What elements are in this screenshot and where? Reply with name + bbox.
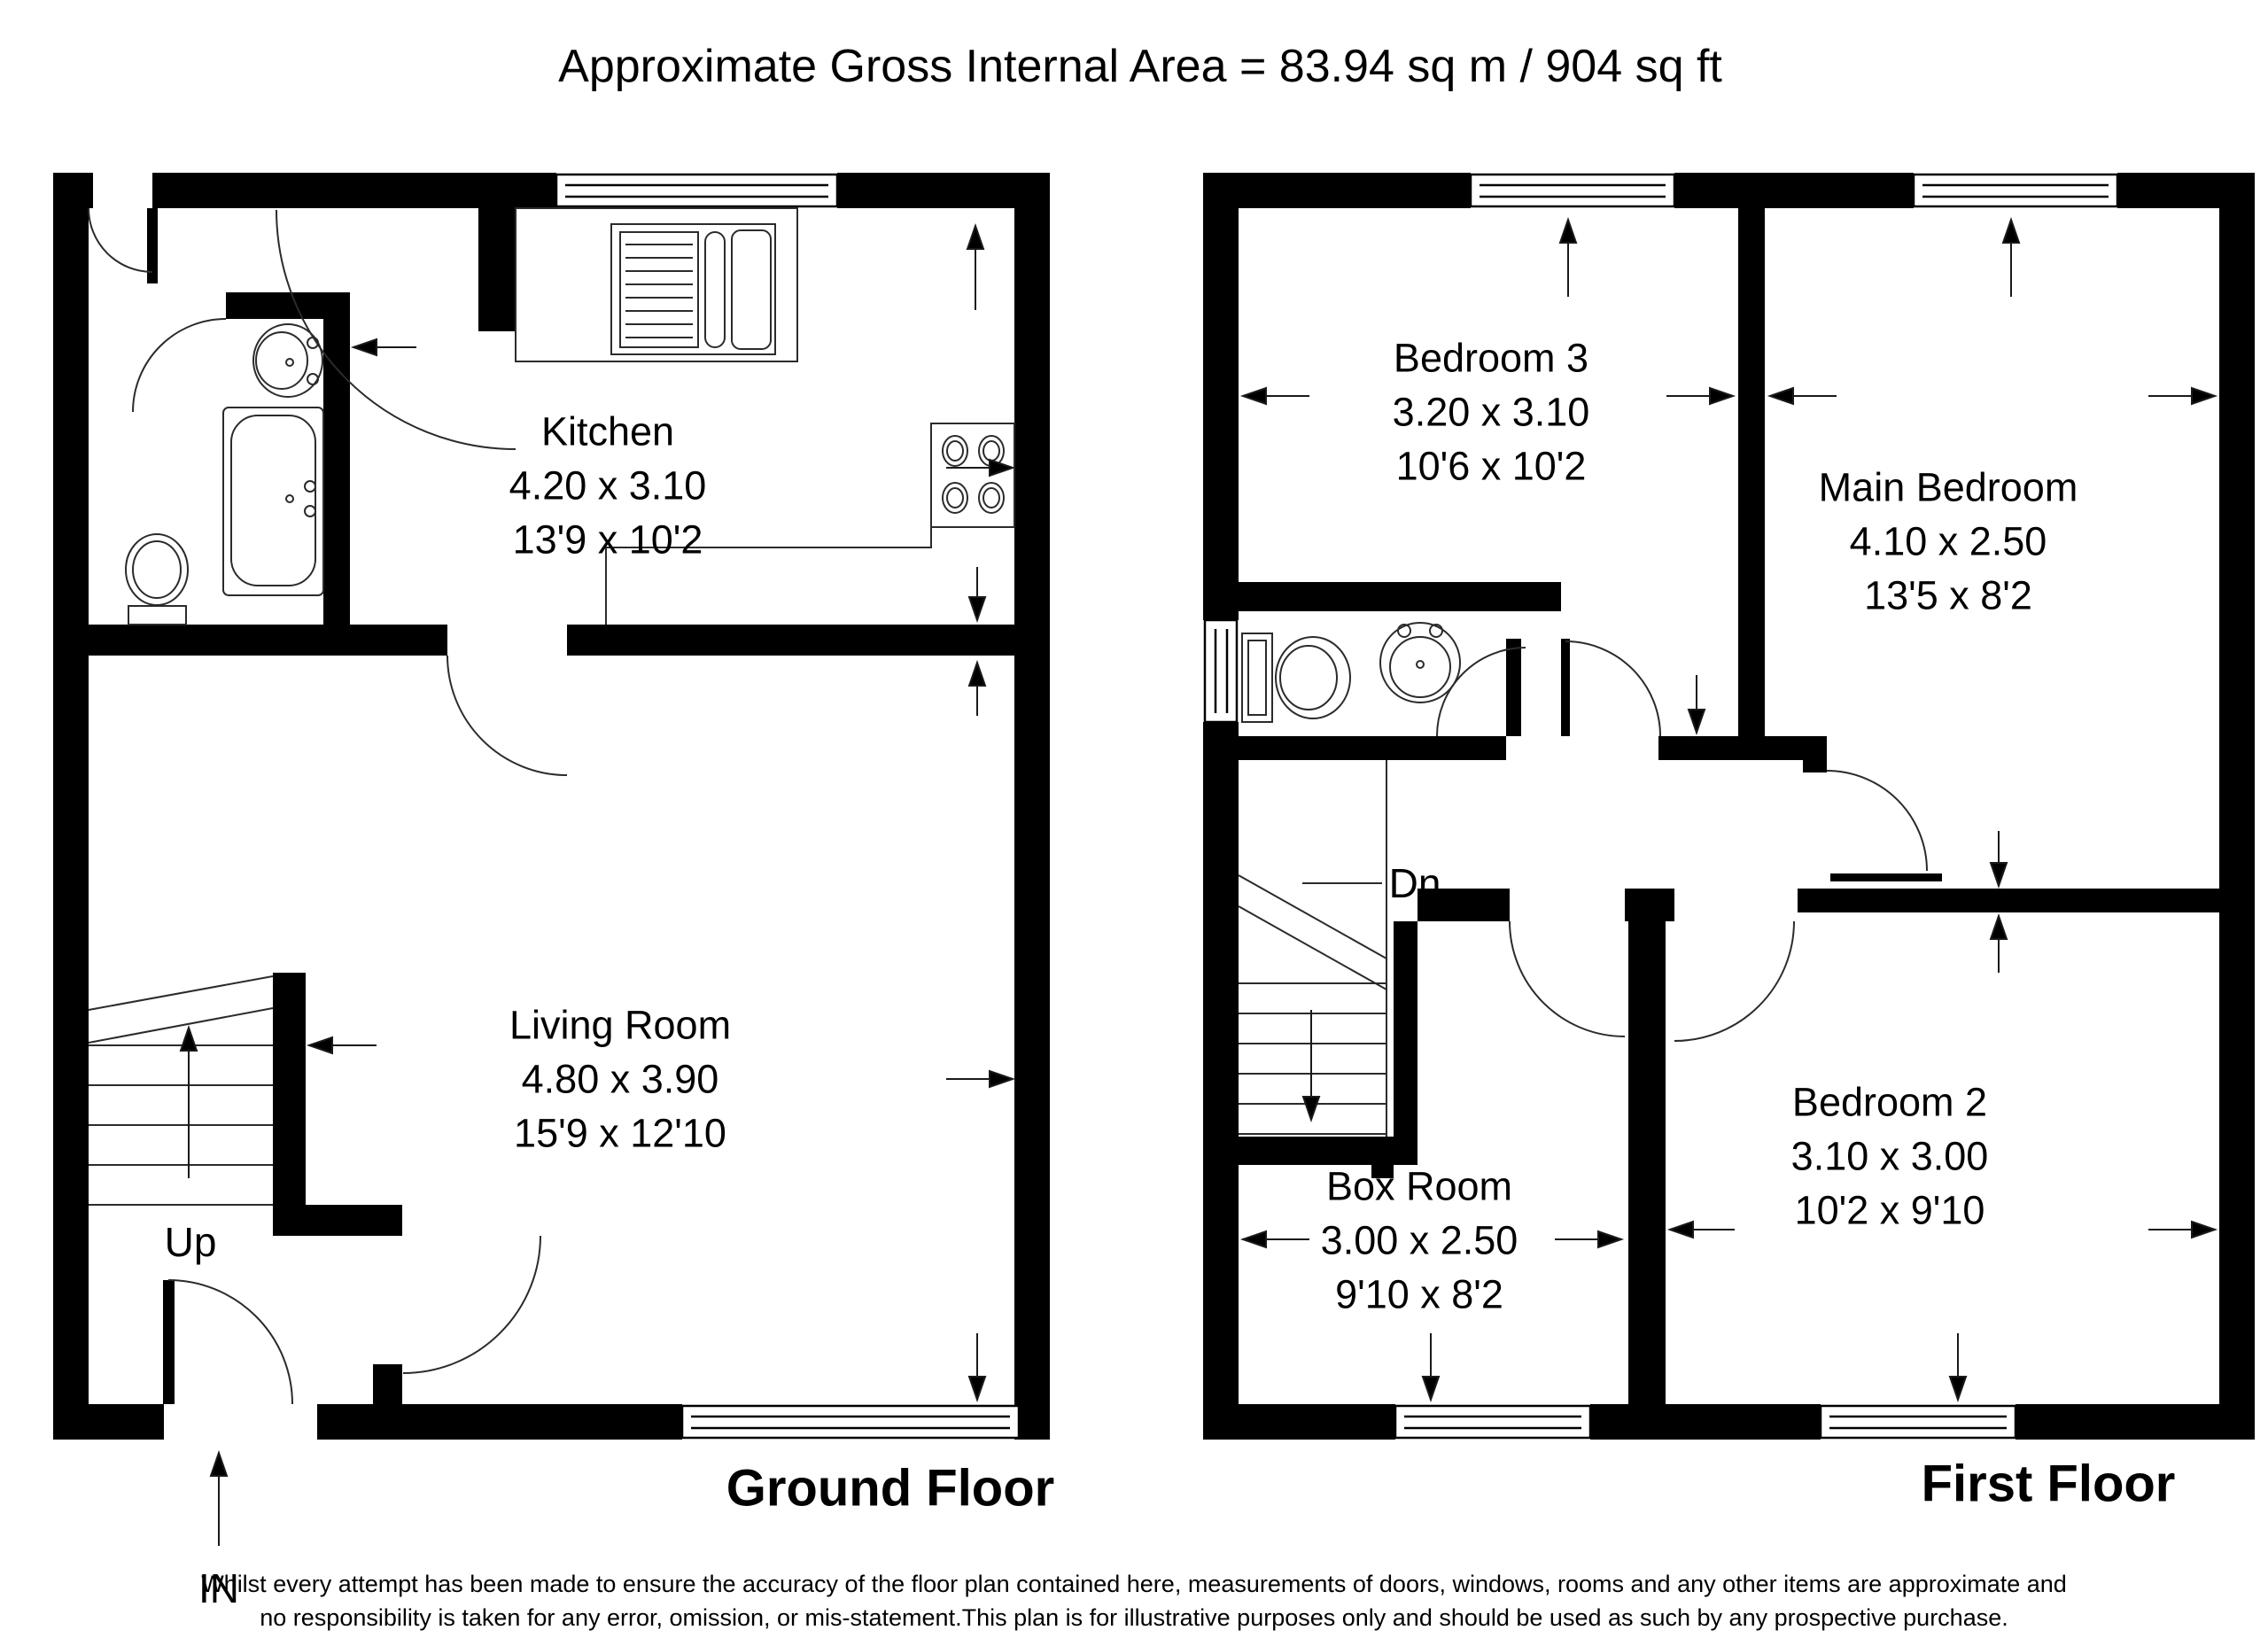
- room-label-bedroom3: Bedroom 3 3.20 x 3.10 10'6 x 10'2: [1393, 331, 1590, 493]
- stairs-down: [1239, 760, 1386, 1137]
- door-leaf: [1561, 639, 1570, 736]
- door-leaf: [1830, 873, 1942, 881]
- room-label-kitchen: Kitchen 4.20 x 3.10 13'9 x 10'2: [509, 405, 707, 567]
- floorplan-page: Approximate Gross Internal Area = 83.94 …: [0, 0, 2268, 1638]
- room-size-metric: 4.80 x 3.90: [509, 1052, 731, 1106]
- room-name: Bedroom 3: [1393, 331, 1590, 385]
- disclaimer-line1: Whilst every attempt has been made to en…: [201, 1567, 2067, 1601]
- room-size-metric: 3.20 x 3.10: [1393, 385, 1590, 439]
- room-size-imperial: 13'9 x 10'2: [509, 513, 707, 567]
- main-bedroom-window: [1914, 175, 2117, 206]
- room-size-imperial: 13'5 x 8'2: [1819, 569, 2078, 623]
- room-size-imperial: 10'6 x 10'2: [1393, 439, 1590, 493]
- room-name: Box Room: [1321, 1160, 1518, 1214]
- bathroom-window: [1205, 620, 1237, 722]
- room-size-imperial: 9'10 x 8'2: [1321, 1268, 1518, 1322]
- ground-floor-label: Ground Floor: [726, 1459, 1055, 1518]
- dimension-arrows: [181, 220, 2215, 1546]
- stairs-down-label: Dn: [1389, 859, 1441, 907]
- box-room-window: [1395, 1406, 1590, 1438]
- room-size-metric: 4.20 x 3.10: [509, 459, 707, 513]
- kitchen-sink-icon: [611, 224, 775, 354]
- toilet-icon-first: [1242, 633, 1350, 722]
- bathroom-sink-icon: [253, 324, 322, 397]
- room-label-bedroom2: Bedroom 2 3.10 x 3.00 10'2 x 9'10: [1791, 1075, 1989, 1238]
- first-floor-label: First Floor: [1922, 1455, 2176, 1514]
- hob-icon: [931, 423, 1014, 527]
- living-room-window: [682, 1406, 1019, 1438]
- toilet-icon: [126, 534, 188, 625]
- floorplan-drawing: [0, 0, 2268, 1638]
- stairs-up-label: Up: [165, 1218, 217, 1266]
- room-size-metric: 3.00 x 2.50: [1321, 1214, 1518, 1268]
- bathtub-icon: [223, 408, 323, 595]
- room-name: Main Bedroom: [1819, 461, 2078, 515]
- bedroom2-window: [1821, 1406, 2016, 1438]
- bedroom3-window: [1471, 175, 1674, 206]
- front-door-leaf: [163, 1280, 175, 1404]
- page-title: Approximate Gross Internal Area = 83.94 …: [558, 40, 1722, 93]
- bathroom-sink-icon-first: [1380, 623, 1460, 703]
- room-size-metric: 4.10 x 2.50: [1819, 515, 2078, 569]
- kitchen-window: [556, 175, 837, 206]
- room-name: Bedroom 2: [1791, 1075, 1989, 1130]
- disclaimer-line2: no responsibility is taken for any error…: [260, 1601, 2008, 1634]
- room-size-imperial: 10'2 x 9'10: [1791, 1184, 1989, 1238]
- stairs-up: [89, 976, 273, 1205]
- room-label-box-room: Box Room 3.00 x 2.50 9'10 x 8'2: [1321, 1160, 1518, 1322]
- room-name: Kitchen: [509, 405, 707, 459]
- room-label-main-bedroom: Main Bedroom 4.10 x 2.50 13'5 x 8'2: [1819, 461, 2078, 623]
- room-name: Living Room: [509, 998, 731, 1052]
- room-size-imperial: 15'9 x 12'10: [509, 1106, 731, 1161]
- room-label-living-room: Living Room 4.80 x 3.90 15'9 x 12'10: [509, 998, 731, 1161]
- room-size-metric: 3.10 x 3.00: [1791, 1130, 1989, 1184]
